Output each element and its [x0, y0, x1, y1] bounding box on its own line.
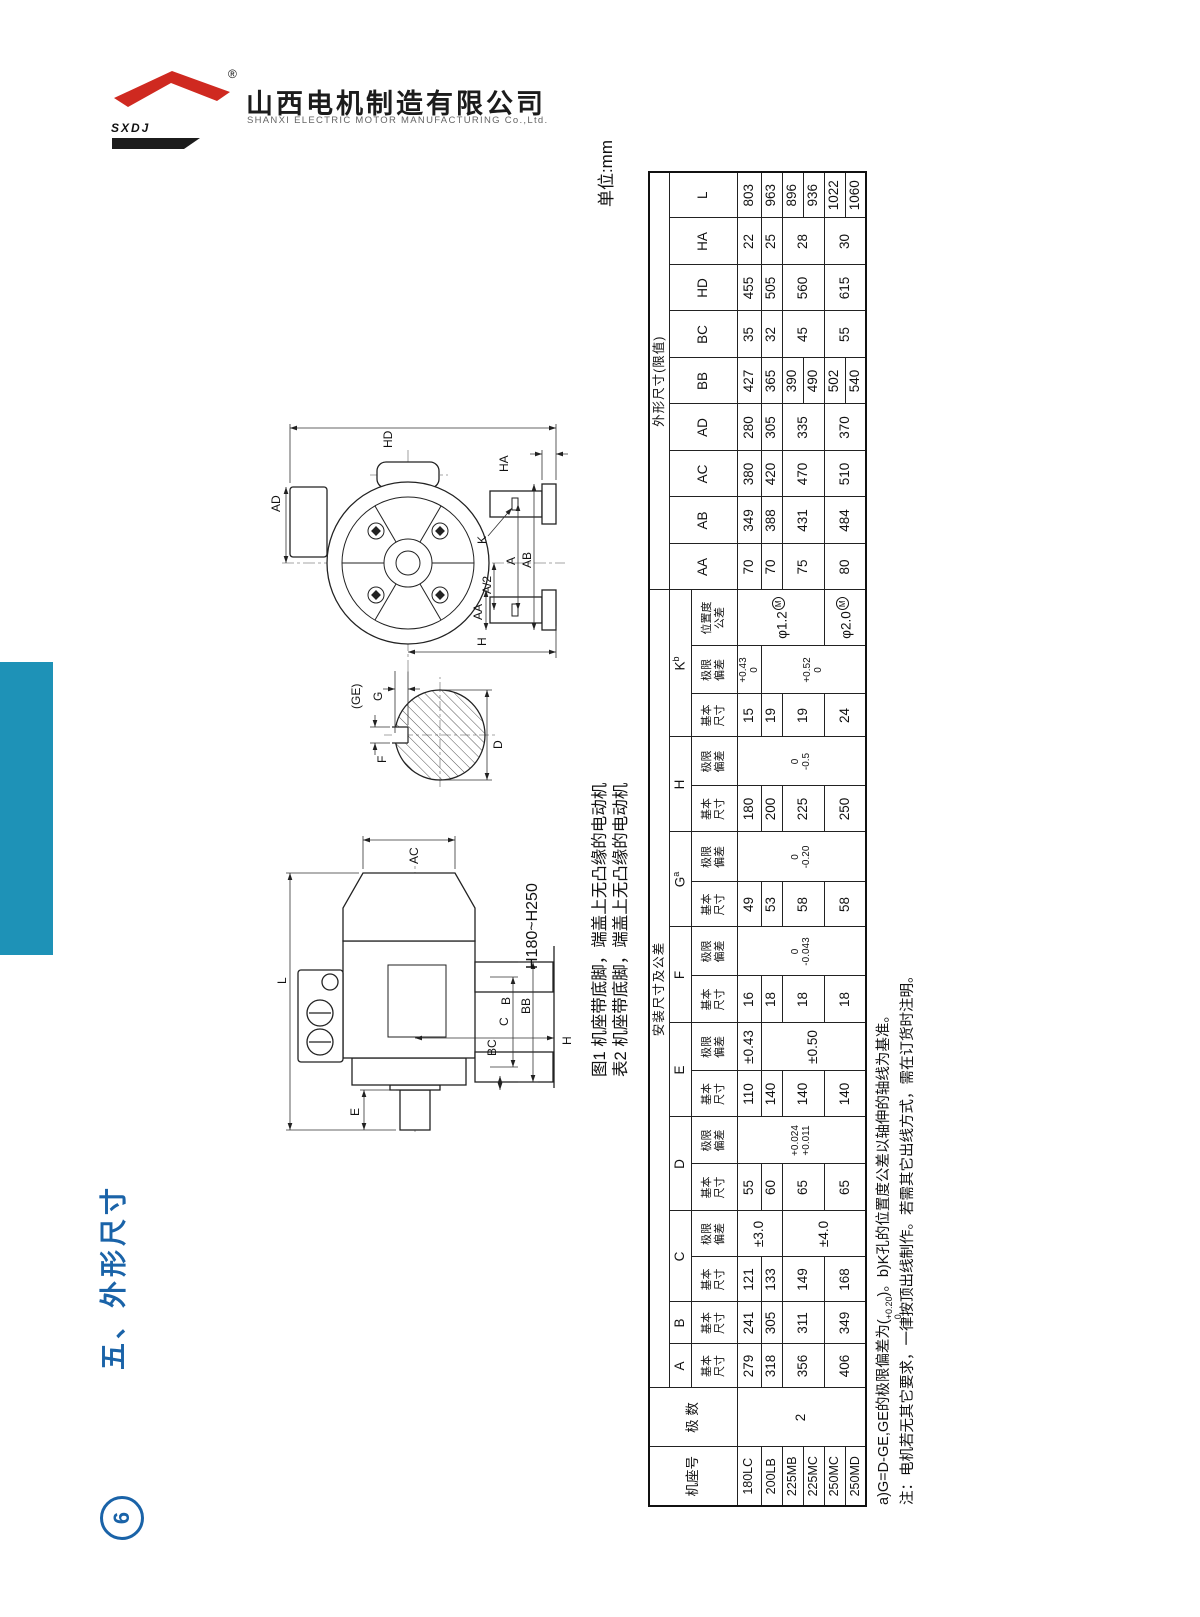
frame-size: 200LB	[761, 1447, 782, 1506]
cell: 390	[782, 358, 803, 404]
cell: 45	[782, 311, 824, 358]
cell: 356	[782, 1344, 824, 1388]
cell: 58	[782, 882, 824, 927]
group-header-outline: 外形尺寸(限值)	[649, 172, 669, 590]
datasheet-page: SXDJ ® 山西电机制造有限公司 SHANXI ELECTRIC MOTOR …	[0, 0, 1200, 1617]
cell: 349	[824, 1302, 866, 1344]
col-header-k: Kb	[669, 590, 691, 737]
figure-captions: 图1 机座带底脚，端盖上无凸缘的电动机 表2 机座带底脚，端盖上无凸缘的电动机	[590, 783, 632, 1077]
cell: 318	[761, 1344, 782, 1388]
dim-label-a: A	[504, 557, 518, 565]
dim-label-hd: HD	[381, 430, 395, 448]
dim-label-h-side: H	[560, 1036, 574, 1045]
frame-size: 250MC	[824, 1447, 845, 1506]
subheader-basic: 基本尺寸	[691, 1164, 737, 1211]
dim-label-f: F	[375, 756, 389, 763]
col-header-hd: HD	[669, 265, 737, 311]
cell: ±3.0	[737, 1211, 782, 1257]
dim-label-k: K	[475, 536, 489, 544]
cell: 55	[737, 1164, 761, 1211]
subheader-dev: 极限偏差	[691, 1211, 737, 1257]
cell: 388	[761, 497, 782, 544]
col-header-b: B	[669, 1302, 691, 1344]
cell: 200	[761, 786, 782, 832]
cell: ±0.50	[761, 1023, 866, 1071]
subheader-dev: 极限偏差	[691, 927, 737, 976]
cell: 431	[782, 497, 824, 544]
subheader-basic: 基本尺寸	[691, 882, 737, 927]
dim-label-bb: BB	[519, 998, 533, 1014]
frame-size: 225MB	[782, 1447, 803, 1506]
cell: 225	[782, 786, 824, 832]
dim-label-ab: AB	[520, 552, 534, 568]
frame-size: 180LC	[737, 1447, 761, 1506]
fig-caption: 图1 机座带底脚，端盖上无凸缘的电动机	[590, 783, 611, 1077]
cell: 30	[824, 218, 866, 265]
cell: 349	[737, 497, 761, 544]
subheader-basic: 基本尺寸	[691, 1257, 737, 1302]
cell: 0-0.5	[737, 737, 866, 786]
col-header-ha: HA	[669, 218, 737, 265]
col-header-poles: 极 数	[649, 1388, 737, 1447]
motor-front-view-drawing: HD AD HA H K A/2 A AA AB	[260, 382, 572, 682]
subheader-basic: 基本尺寸	[691, 694, 737, 737]
cell: 370	[824, 404, 866, 451]
page-number-badge: 6	[100, 1496, 144, 1540]
cell: 168	[824, 1257, 866, 1302]
cell: 510	[824, 451, 866, 497]
dimension-table: 机座号 极 数 安装尺寸及公差 外形尺寸(限值) A B C D E F Ga …	[648, 171, 867, 1507]
dim-label-d: D	[491, 740, 505, 749]
subheader-dev: 极限偏差	[691, 1117, 737, 1164]
cell: 250	[824, 786, 866, 832]
cell: 53	[761, 882, 782, 927]
cell: +0.520	[761, 646, 866, 694]
cell: 505	[761, 265, 782, 311]
cell: ±4.0	[782, 1211, 866, 1257]
cell: φ1.2M	[737, 590, 824, 646]
col-header-ad: AD	[669, 404, 737, 451]
col-header-c: C	[669, 1211, 691, 1302]
cell: 18	[824, 976, 866, 1023]
cell: 60	[761, 1164, 782, 1211]
cell: 560	[782, 265, 824, 311]
cell: 540	[845, 358, 866, 404]
cell: 0-0.043	[737, 927, 866, 976]
col-header-g: Ga	[669, 832, 691, 927]
dim-label-ha: HA	[497, 455, 511, 472]
col-header-h: H	[669, 737, 691, 832]
col-header-e: E	[669, 1023, 691, 1117]
cell: 55	[824, 311, 866, 358]
dim-label-h-front: H	[475, 637, 489, 646]
col-header-ac: AC	[669, 451, 737, 497]
dim-label-g: G	[371, 692, 385, 701]
cell: 936	[803, 172, 824, 218]
subheader-basic: 基本尺寸	[691, 976, 737, 1023]
cell: ±0.43	[737, 1023, 761, 1071]
cell: 140	[782, 1071, 824, 1117]
cell: 149	[782, 1257, 824, 1302]
cell: 18	[761, 976, 782, 1023]
cell: 380	[737, 451, 761, 497]
group-header-install: 安装尺寸及公差	[649, 590, 669, 1388]
cell: 455	[737, 265, 761, 311]
frame-size: 250MD	[845, 1447, 866, 1506]
cell: +0.430	[737, 646, 761, 694]
cell: 963	[761, 172, 782, 218]
subheader-basic: 基本尺寸	[691, 1344, 737, 1388]
cell: 24	[824, 694, 866, 737]
col-header-f: F	[669, 927, 691, 1023]
cell: 896	[782, 172, 803, 218]
cell: 133	[761, 1257, 782, 1302]
dim-label-c: C	[497, 1017, 511, 1026]
cell: 65	[824, 1164, 866, 1211]
cell: 16	[737, 976, 761, 1023]
cell: 490	[803, 358, 824, 404]
cell: 25	[761, 218, 782, 265]
dim-label-b: B	[499, 997, 513, 1005]
col-header-a: A	[669, 1344, 691, 1388]
cell: 502	[824, 358, 845, 404]
cell: 180	[737, 786, 761, 832]
cell: 280	[737, 404, 761, 451]
cell: 22	[737, 218, 761, 265]
subheader-basic: 基本尺寸	[691, 786, 737, 832]
cell: 311	[782, 1302, 824, 1344]
cell: 49	[737, 882, 761, 927]
cell: 80	[824, 544, 866, 590]
dim-label-l: L	[275, 977, 289, 984]
subheader-basic: 基本尺寸	[691, 1071, 737, 1117]
cell: 1060	[845, 172, 866, 218]
cell: 70	[737, 544, 761, 590]
section-title: 五、外形尺寸	[92, 1184, 131, 1370]
subheader-pos: 位置度公差	[691, 590, 737, 646]
subheader-dev: 极限偏差	[691, 737, 737, 786]
cell: 470	[782, 451, 824, 497]
cell: 58	[824, 882, 866, 927]
frame-size: 225MC	[803, 1447, 824, 1506]
cell: φ2.0M	[824, 590, 866, 646]
dim-label-ac: AC	[407, 847, 421, 864]
cell: 110	[737, 1071, 761, 1117]
cell: 279	[737, 1344, 761, 1388]
cell: 35	[737, 311, 761, 358]
cell: 18	[782, 976, 824, 1023]
cell: 19	[761, 694, 782, 737]
cell: 427	[737, 358, 761, 404]
cell: 70	[761, 544, 782, 590]
cell: 121	[737, 1257, 761, 1302]
cell: 241	[737, 1302, 761, 1344]
cell: 305	[761, 1302, 782, 1344]
cell: 615	[824, 265, 866, 311]
cell: 28	[782, 218, 824, 265]
cell: 365	[761, 358, 782, 404]
cell: 19	[782, 694, 824, 737]
col-header-bb: BB	[669, 358, 737, 404]
cell: +0.024+0.011	[737, 1117, 866, 1164]
cell: 65	[782, 1164, 824, 1211]
dim-label-ge: (GE)	[349, 684, 363, 709]
subheader-dev: 极限偏差	[691, 832, 737, 882]
col-header-frame: 机座号	[649, 1447, 737, 1506]
col-header-bc: BC	[669, 311, 737, 358]
col-header-l: L	[669, 172, 737, 218]
subheader-dev: 极限偏差	[691, 1023, 737, 1071]
subheader-dev: 极限偏差	[691, 646, 737, 694]
poles-value: 2	[737, 1388, 866, 1447]
cell: 1022	[824, 172, 845, 218]
cell: 140	[824, 1071, 866, 1117]
cell: 484	[824, 497, 866, 544]
cell: 75	[782, 544, 824, 590]
dim-label-a2: A/2	[480, 576, 494, 594]
cell: 803	[737, 172, 761, 218]
cell: 32	[761, 311, 782, 358]
table-note-order: 注：电机若无其它要求，一律按顶出线制作。若需其它出线方式，需在订货时注明。	[896, 969, 917, 1506]
unit-label: 单位:mm	[592, 140, 617, 297]
cell: 140	[761, 1071, 782, 1117]
dim-label-bc: BC	[485, 1039, 499, 1056]
cell: 305	[761, 404, 782, 451]
frame-range-label: H180~H250	[524, 883, 542, 969]
col-header-aa: AA	[669, 544, 737, 590]
col-header-ab: AB	[669, 497, 737, 544]
dim-label-e: E	[348, 1108, 362, 1116]
col-header-d: D	[669, 1117, 691, 1211]
cell: 420	[761, 451, 782, 497]
cell: 335	[782, 404, 824, 451]
cell: 15	[737, 694, 761, 737]
dim-label-aa: AA	[471, 604, 485, 620]
table-caption: 表2 机座带底脚，端盖上无凸缘的电动机	[611, 783, 632, 1077]
rotated-content-layer: 6 五、外形尺寸	[0, 0, 1200, 1617]
cell: 406	[824, 1344, 866, 1388]
cell: 0-0.20	[737, 832, 866, 882]
subheader-basic: 基本尺寸	[691, 1302, 737, 1344]
dim-label-ad: AD	[269, 495, 283, 512]
